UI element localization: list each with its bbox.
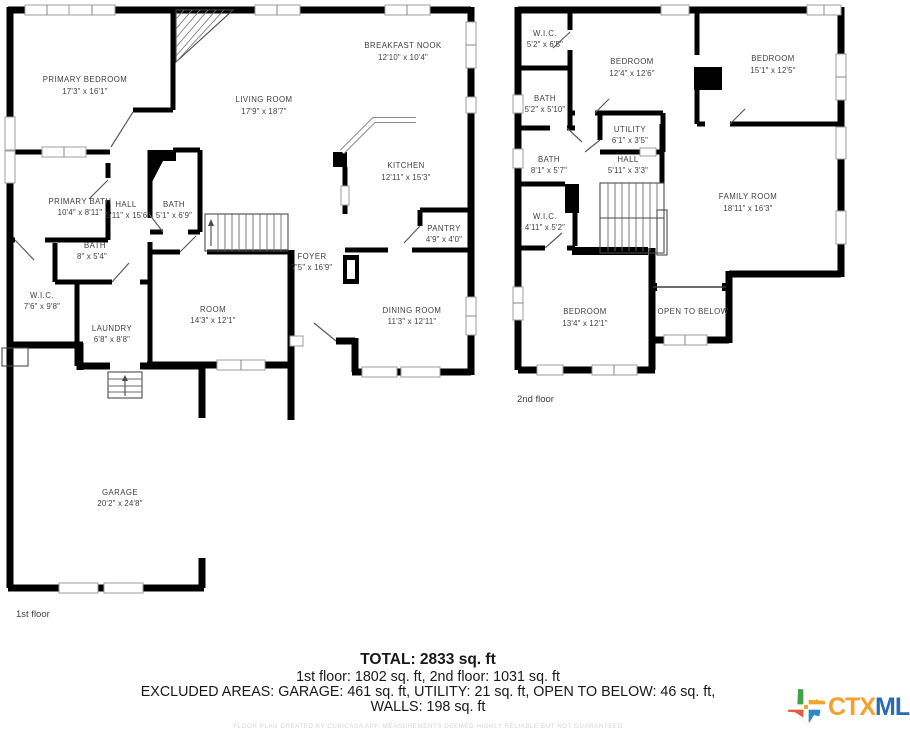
room-label-bath-small: BATH 8" x 5'4" <box>77 241 107 261</box>
svg-text:BATH: BATH <box>163 200 185 209</box>
svg-text:KITCHEN: KITCHEN <box>387 161 424 170</box>
svg-text:W.I.C.: W.I.C. <box>533 29 557 38</box>
svg-text:W.I.C.: W.I.C. <box>30 291 54 300</box>
room-label-room: ROOM 14'3" x 12'1" <box>190 305 235 325</box>
ctx-text: CTX <box>828 693 875 721</box>
svg-text:12'11" x 15'3": 12'11" x 15'3" <box>381 173 430 182</box>
room-label-living-room: LIVING ROOM 17'9" x 18'7" <box>236 95 293 116</box>
svg-text:7'6" x 9'8": 7'6" x 9'8" <box>24 302 60 311</box>
room-label-breakfast-nook: BREAKFAST NOOK 12'10" x 10'4" <box>364 41 442 62</box>
room-label-dining-room: DINING ROOM 11'3" x 12'11" <box>383 306 442 326</box>
svg-text:17'3" x 16'1": 17'3" x 16'1" <box>62 87 107 96</box>
room-label-family-room: FAMILY ROOM 18'11" x 16'3" <box>719 192 777 213</box>
room-label-wic: W.I.C. 7'6" x 9'8" <box>24 291 60 311</box>
room-label-wic2: W.I.C. 4'11" x 5'2" <box>525 212 565 232</box>
room-labels-1st-floor: PRIMARY BEDROOM 17'3" x 16'1" LIVING ROO… <box>24 41 462 508</box>
svg-text:LAUNDRY: LAUNDRY <box>92 324 133 333</box>
svg-text:ROOM: ROOM <box>200 305 226 314</box>
svg-text:8'1" x 5'7": 8'1" x 5'7" <box>531 166 567 175</box>
fireplace-block <box>333 152 347 167</box>
room-label-primary-bath: PRIMARY BATH 10'4" x 8'11" <box>48 197 111 217</box>
svg-text:FAMILY ROOM: FAMILY ROOM <box>719 192 777 201</box>
svg-text:6'8" x 8'8": 6'8" x 8'8" <box>94 335 130 344</box>
svg-text:5'1" x 6'9": 5'1" x 6'9" <box>156 211 192 220</box>
floorplan-2nd-floor: W.I.C. 5'2" x 6'5" BEDROOM 12'4" x 12'6"… <box>505 0 910 410</box>
open-to-below-railing <box>650 283 729 291</box>
svg-text:GARAGE: GARAGE <box>102 488 138 497</box>
room-label-utility: UTILITY 6'1" x 3'5" <box>612 125 648 145</box>
svg-text:BREAKFAST NOOK: BREAKFAST NOOK <box>364 41 442 50</box>
room-label-foyer: FOYER 7'5" x 16'9" <box>292 252 333 272</box>
svg-text:5'2" x 5'10": 5'2" x 5'10" <box>525 105 566 114</box>
svg-text:BEDROOM: BEDROOM <box>751 54 794 63</box>
svg-text:4'11" x 5'2": 4'11" x 5'2" <box>525 223 565 232</box>
svg-text:6'1" x 3'5": 6'1" x 3'5" <box>612 136 648 145</box>
room-label-bath1: BATH 5'2" x 5'10" <box>525 94 566 114</box>
bath-wall-block <box>565 184 579 213</box>
room-label-kitchen: KITCHEN 12'11" x 15'3" <box>381 161 430 182</box>
room-label-laundry: LAUNDRY 6'8" x 8'8" <box>92 324 133 344</box>
bedroom-divider-block <box>694 67 722 90</box>
upper-staircase-hatch-icon <box>176 10 233 62</box>
room-label-primary-bedroom: PRIMARY BEDROOM 17'3" x 16'1" <box>43 75 127 96</box>
svg-text:11'3" x 12'11": 11'3" x 12'11" <box>388 317 437 326</box>
svg-text:10'4" x 8'11": 10'4" x 8'11" <box>58 208 103 217</box>
svg-text:18'11" x 16'3": 18'11" x 16'3" <box>723 204 772 213</box>
svg-text:5'11" x 3'3": 5'11" x 3'3" <box>608 166 648 175</box>
side-stoop <box>2 348 28 366</box>
svg-text:LIVING ROOM: LIVING ROOM <box>236 95 293 104</box>
room-label-pantry: PANTRY 4'9" x 4'0" <box>426 224 462 244</box>
caption-1st-floor: 1st floor <box>16 609 50 620</box>
svg-text:PRIMARY BATH: PRIMARY BATH <box>48 197 111 206</box>
svg-text:W.I.C.: W.I.C. <box>533 212 557 221</box>
svg-text:BATH: BATH <box>84 241 106 250</box>
wall-chamfer-block <box>150 150 176 186</box>
ctxmls-logo: CTXMLS <box>786 688 910 726</box>
room-label-hall: HALL 5'11" x 15'6" <box>106 200 151 220</box>
svg-text:17'9" x 18'7": 17'9" x 18'7" <box>241 107 286 116</box>
disclaimer-text: FLOOR PLAN CREATED BY CUBICASA APP. MEAS… <box>0 723 856 730</box>
svg-text:BEDROOM: BEDROOM <box>563 307 606 316</box>
texas-icon <box>786 688 826 726</box>
staircase-1st-floor <box>205 214 288 251</box>
svg-text:14'3" x 12'1": 14'3" x 12'1" <box>190 316 235 325</box>
room-label-garage: GARAGE 20'2" x 24'8" <box>97 488 142 508</box>
mls-text: MLS <box>875 693 910 721</box>
svg-text:4'9" x 4'0": 4'9" x 4'0" <box>426 235 462 244</box>
foyer-closet-inner <box>347 260 355 279</box>
floorplan-1st-floor: PRIMARY BEDROOM 17'3" x 16'1" LIVING ROO… <box>0 0 500 628</box>
stair-bottom-wall <box>572 247 648 255</box>
area-summary: TOTAL: 2833 sq. ft 1st floor: 1802 sq. f… <box>0 651 856 730</box>
walls-area: WALLS: 198 sq. ft <box>0 700 856 715</box>
svg-text:5'11" x 15'6": 5'11" x 15'6" <box>106 211 151 220</box>
svg-text:PANTRY: PANTRY <box>427 224 461 233</box>
svg-text:PRIMARY BEDROOM: PRIMARY BEDROOM <box>43 75 127 84</box>
svg-text:15'1" x 12'5": 15'1" x 12'5" <box>750 66 795 75</box>
room-label-open-to-below: OPEN TO BELOW <box>658 307 729 316</box>
total-area: TOTAL: 2833 sq. ft <box>0 651 856 669</box>
room-label-wic1: W.I.C. 5'2" x 6'5" <box>527 29 563 49</box>
room-label-hall: HALL 5'11" x 3'3" <box>608 155 648 175</box>
svg-text:UTILITY: UTILITY <box>614 125 647 134</box>
room-label-bedroom1: BEDROOM 12'4" x 12'6" <box>609 57 654 78</box>
kitchen-counter <box>342 120 416 152</box>
floor-areas: 1st floor: 1802 sq. ft, 2nd floor: 1031 … <box>0 670 856 685</box>
room-label-bedroom3: BEDROOM 13'4" x 12'1" <box>562 307 607 328</box>
floorplan-page: PRIMARY BEDROOM 17'3" x 16'1" LIVING ROO… <box>0 0 910 731</box>
svg-text:HALL: HALL <box>617 155 639 164</box>
svg-text:8" x 5'4": 8" x 5'4" <box>77 252 107 261</box>
room-label-bath2: BATH 8'1" x 5'7" <box>531 155 567 175</box>
room-label-bedroom2: BEDROOM 15'1" x 12'5" <box>750 54 795 75</box>
svg-text:7'5" x 16'9": 7'5" x 16'9" <box>292 263 333 272</box>
svg-text:BATH: BATH <box>538 155 560 164</box>
svg-text:BEDROOM: BEDROOM <box>610 57 653 66</box>
staircase-2nd-floor <box>600 183 667 255</box>
svg-text:BATH: BATH <box>534 94 556 103</box>
svg-text:12'4" x 12'6": 12'4" x 12'6" <box>609 69 654 78</box>
svg-text:FOYER: FOYER <box>297 252 326 261</box>
room-label-bath: BATH 5'1" x 6'9" <box>156 200 192 220</box>
ctxmls-wordmark: CTXMLS <box>828 693 910 722</box>
caption-2nd-floor: 2nd floor <box>517 394 554 405</box>
svg-text:OPEN TO BELOW: OPEN TO BELOW <box>658 307 729 316</box>
excluded-areas: EXCLUDED AREAS: GARAGE: 461 sq. ft, UTIL… <box>0 685 856 700</box>
svg-text:13'4" x 12'1": 13'4" x 12'1" <box>562 319 607 328</box>
svg-text:DINING ROOM: DINING ROOM <box>383 306 442 315</box>
svg-text:HALL: HALL <box>115 200 137 209</box>
svg-text:20'2" x 24'8": 20'2" x 24'8" <box>97 499 142 508</box>
garage-steps <box>108 372 142 398</box>
svg-text:5'2" x 6'5": 5'2" x 6'5" <box>527 40 563 49</box>
svg-text:12'10" x 10'4": 12'10" x 10'4" <box>378 53 428 62</box>
